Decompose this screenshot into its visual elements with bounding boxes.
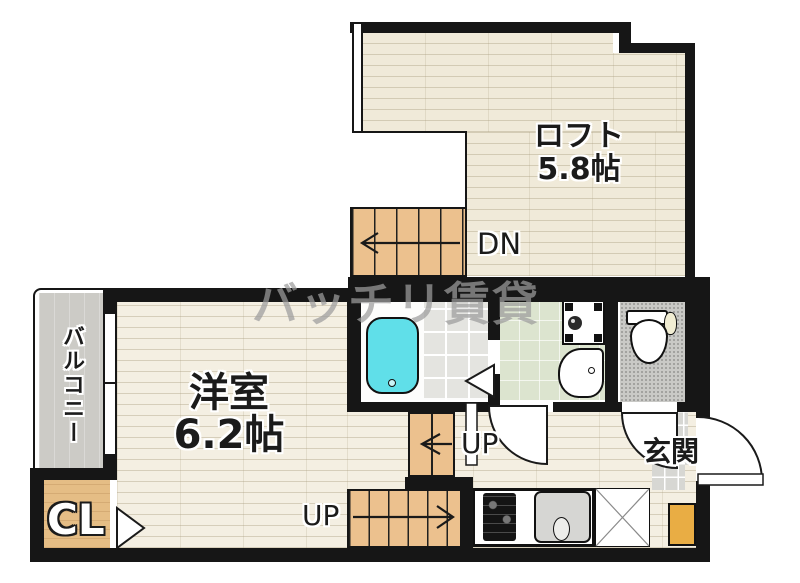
western-room-name: 洋室	[166, 372, 292, 414]
balcony-label: バルコニー	[55, 325, 87, 445]
loft-size: 5.8帖	[520, 153, 638, 186]
stairs-up-lower-arrow-icon	[353, 506, 453, 528]
floor-plan: ロフト 5.8帖 DN 洋室 6.2帖 バルコニー CL UP UP 玄関 バッ…	[0, 0, 800, 583]
bathroom-door-icon	[466, 365, 494, 397]
western-room-label-group: 洋室 6.2帖	[166, 372, 292, 456]
loft-label-group: ロフト 5.8帖	[520, 120, 638, 186]
closet-door-icon	[117, 508, 144, 548]
stairs-down-label: DN	[477, 227, 521, 261]
watermark-text: バッチリ賃貸	[252, 268, 540, 334]
loft-name: ロフト	[520, 120, 638, 153]
front-door-leaf	[698, 474, 763, 485]
entrance-label: 玄関	[643, 430, 699, 470]
up-label-lower: UP	[302, 499, 339, 532]
closet-label: CL	[47, 495, 105, 544]
stairs-up-mid-arrow-icon	[422, 434, 452, 454]
western-room-size: 6.2帖	[166, 414, 292, 456]
stairs-down-arrow-icon	[362, 233, 460, 253]
refrigerator-x-icon	[596, 489, 649, 546]
front-door-swing-arc	[698, 417, 762, 481]
up-label-mid: UP	[461, 427, 498, 460]
